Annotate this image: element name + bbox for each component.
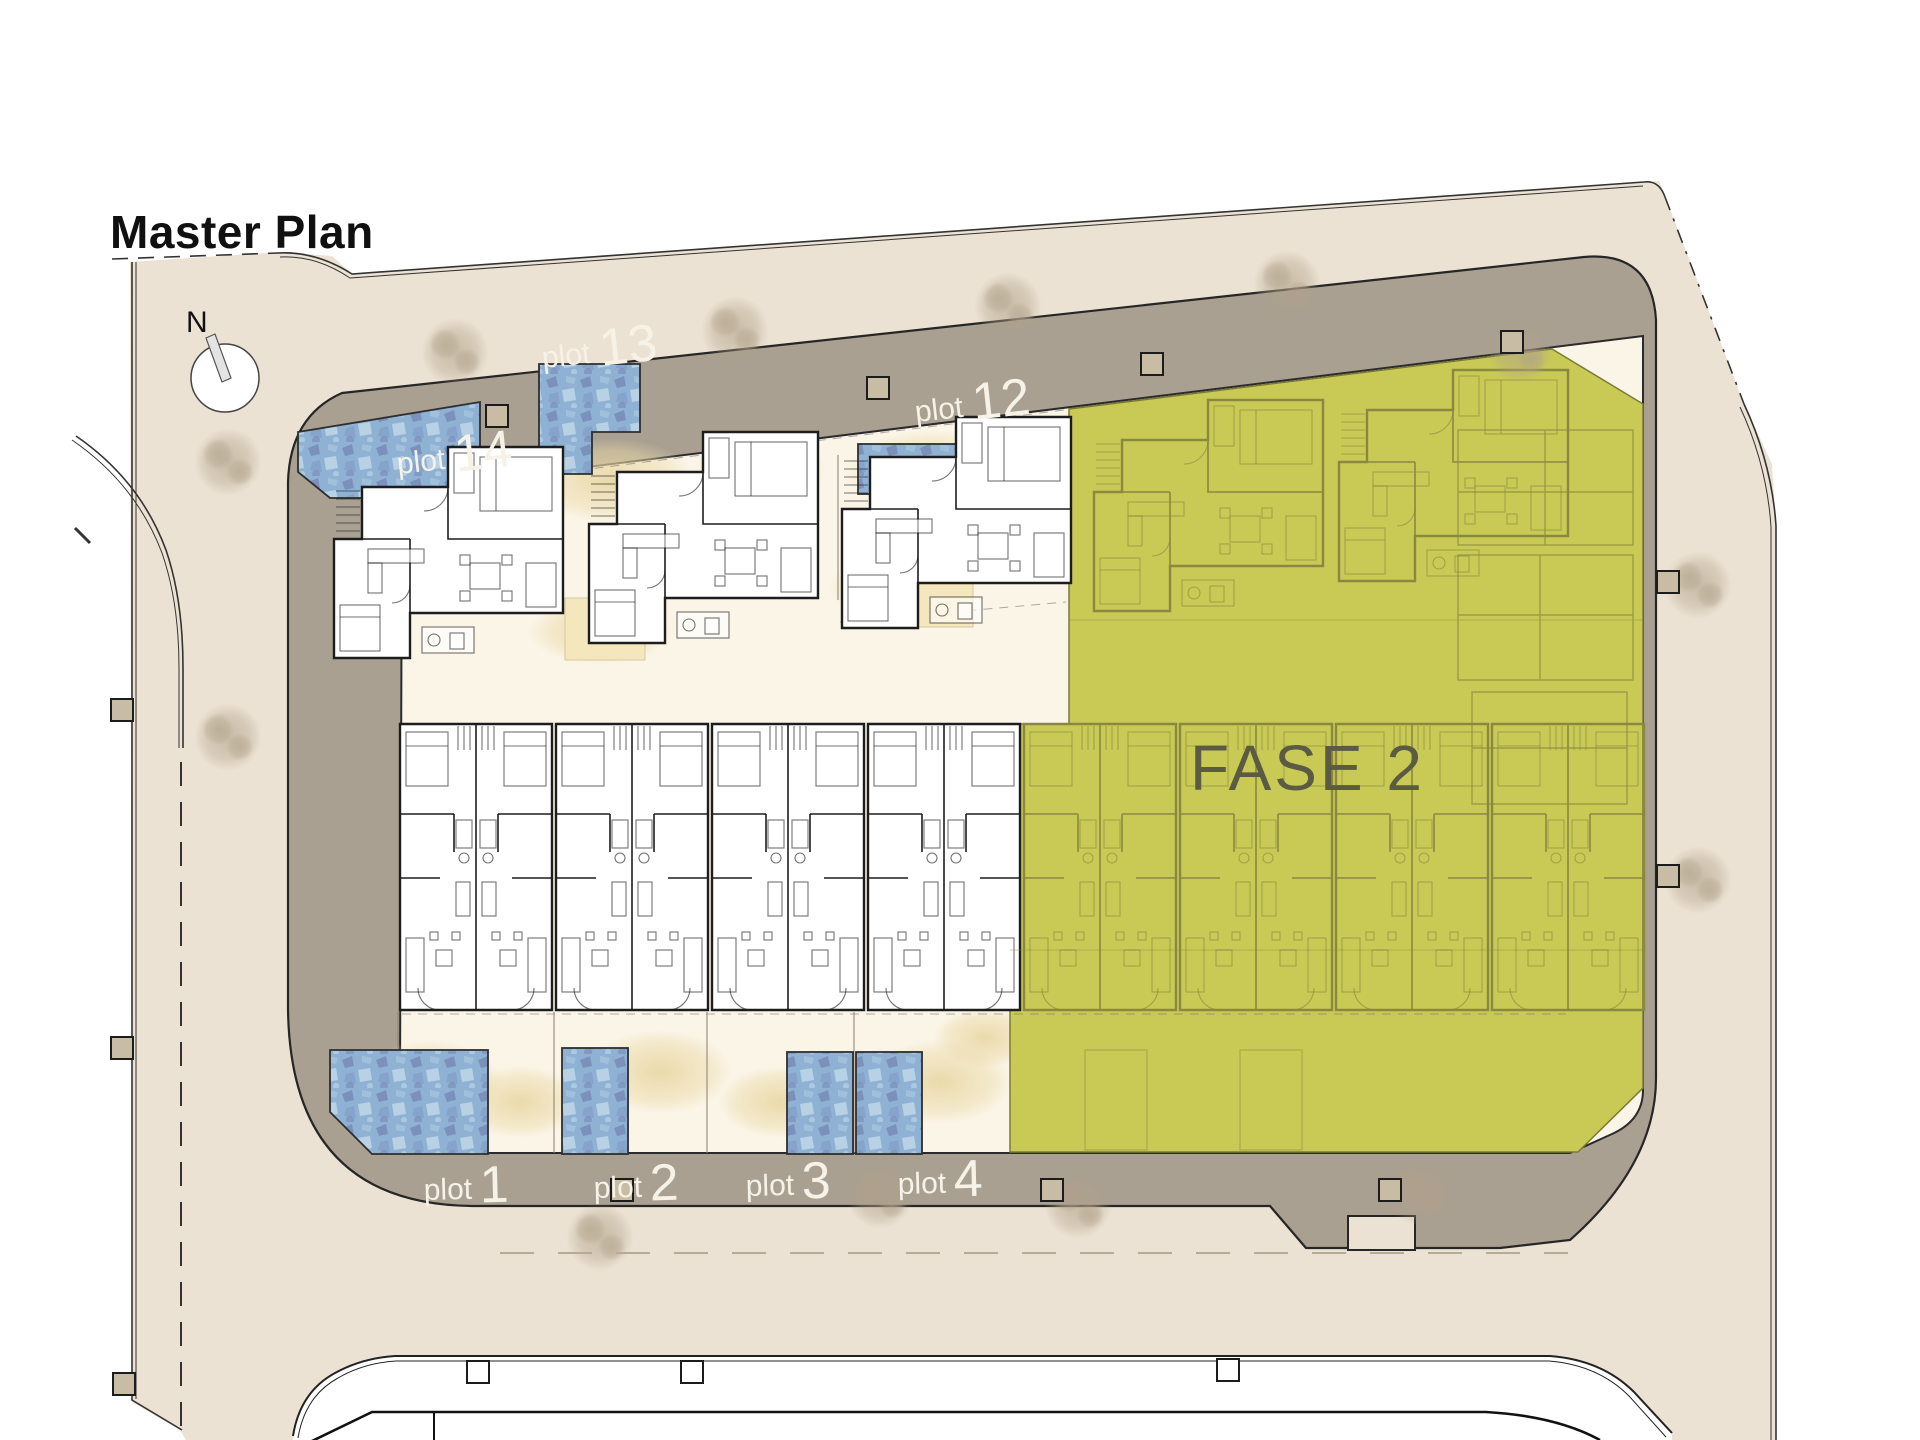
post-icon: [1141, 353, 1163, 375]
bottom-street: [293, 1356, 1672, 1440]
fase2-rowhouse-1: [1024, 724, 1176, 1010]
post-icon: [113, 1373, 135, 1395]
plot14-label-number: 14: [451, 420, 515, 484]
tree-icon: [194, 703, 262, 771]
master-plan-drawing: FASE 2: [0, 0, 1920, 1440]
master-plan-page: FASE 2: [0, 0, 1920, 1440]
post-icon: [1501, 331, 1523, 353]
plot2-label-prefix: plot: [593, 1171, 643, 1205]
plot2-label-number: 2: [649, 1154, 679, 1213]
tree-icon: [566, 1203, 634, 1271]
post-icon: [1379, 1179, 1401, 1201]
street-surface: [293, 1356, 1672, 1440]
north-label: N: [186, 306, 208, 339]
plot12-label-number: 12: [969, 368, 1033, 432]
plot1-label-number: 1: [479, 1156, 509, 1215]
rowhouse-plot3: [712, 724, 864, 1010]
plot13-label-number: 13: [596, 314, 660, 378]
tree-icon: [1253, 250, 1321, 318]
post-icon: [867, 377, 889, 399]
post-icon: [1657, 571, 1679, 593]
plot12-label-prefix: plot: [913, 391, 965, 429]
rowhouse-plot2: [556, 724, 708, 1010]
pool-plot3: [787, 1052, 853, 1154]
post-icon: [1041, 1179, 1063, 1201]
plot1-label-prefix: plot: [423, 1173, 473, 1207]
plot4-label-number: 4: [953, 1150, 983, 1209]
page-title: Master Plan: [110, 206, 374, 258]
post-icon: [1657, 865, 1679, 887]
post-icon: [111, 1037, 133, 1059]
tree-icon: [974, 272, 1042, 340]
plot13-label-prefix: plot: [540, 337, 592, 375]
tree-icon: [701, 296, 769, 364]
tree-icon: [421, 318, 489, 386]
rowhouse-plot4: [868, 724, 1020, 1010]
plot3-label-number: 3: [801, 1152, 831, 1211]
post-icon: [467, 1361, 489, 1383]
context-tick-mark: [75, 528, 90, 543]
fase2-label: FASE 2: [1190, 732, 1425, 804]
pool-plot2: [562, 1048, 628, 1154]
tree-icon: [194, 428, 262, 496]
plot4-label-prefix: plot: [897, 1167, 947, 1201]
post-icon: [111, 699, 133, 721]
pool-plot4: [856, 1052, 922, 1154]
plot3-label-prefix: plot: [745, 1169, 795, 1203]
post-icon: [1217, 1359, 1239, 1381]
post-icon: [681, 1361, 703, 1383]
rowhouse-plot1: [400, 724, 552, 1010]
plot14-label-prefix: plot: [395, 443, 447, 481]
fase2-rowhouse-4: [1492, 724, 1644, 1010]
